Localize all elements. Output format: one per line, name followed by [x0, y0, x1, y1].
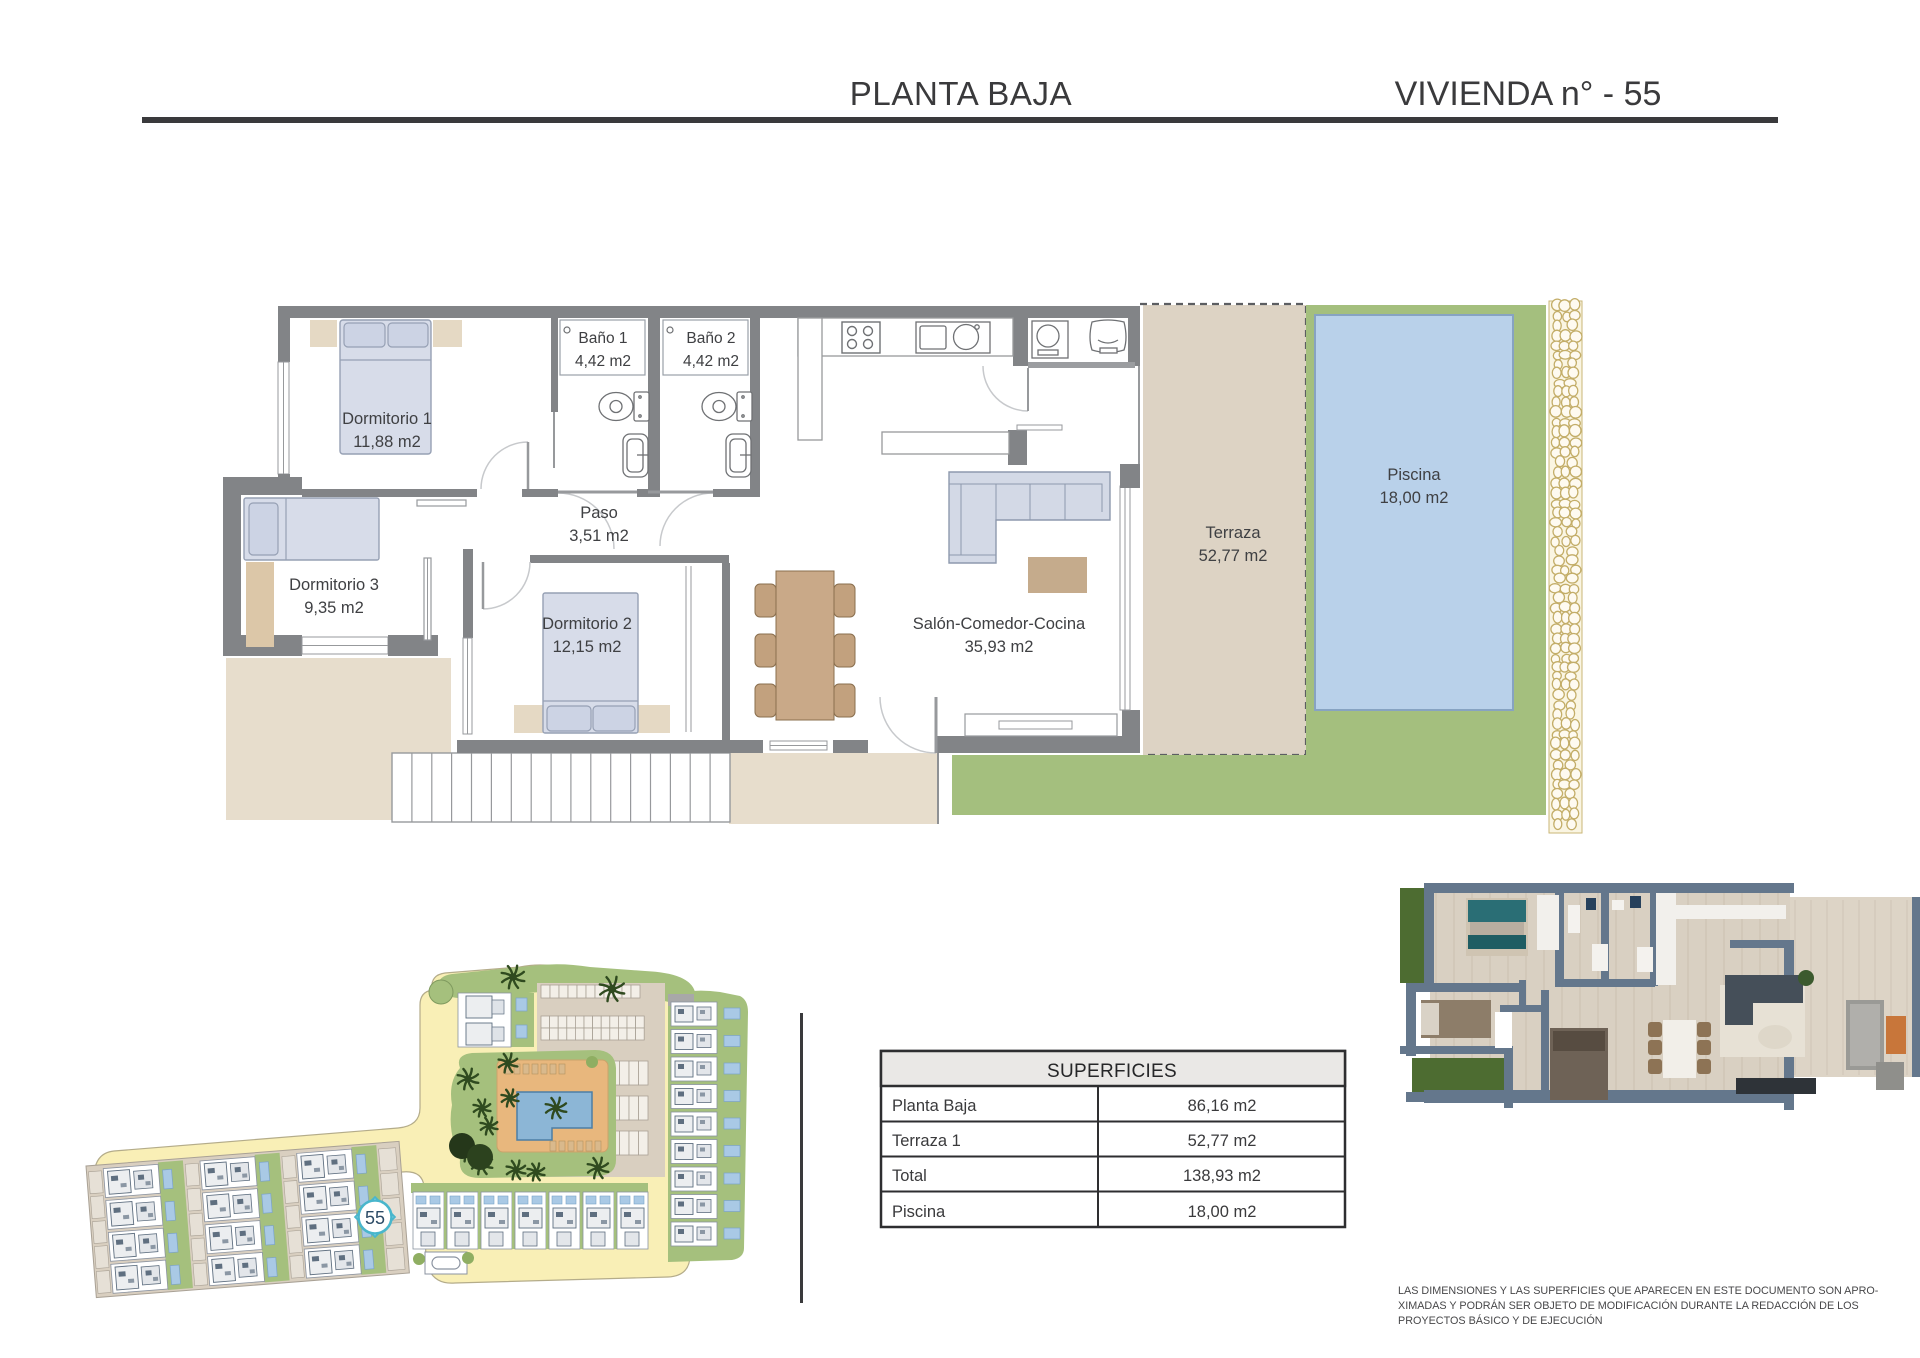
svg-text:Planta Baja: Planta Baja [892, 1097, 977, 1115]
svg-text:Paso: Paso [580, 504, 618, 522]
svg-text:Terraza 1: Terraza 1 [892, 1132, 961, 1150]
svg-text:138,93 m2: 138,93 m2 [1183, 1167, 1261, 1185]
svg-text:18,00 m2: 18,00 m2 [1188, 1203, 1257, 1221]
svg-text:Dormitorio 2: Dormitorio 2 [542, 615, 632, 633]
svg-text:4,42 m2: 4,42 m2 [683, 353, 739, 370]
svg-text:11,88 m2: 11,88 m2 [353, 433, 421, 451]
svg-text:9,35 m2: 9,35 m2 [304, 599, 364, 617]
svg-text:Terraza: Terraza [1205, 524, 1261, 542]
svg-text:18,00 m2: 18,00 m2 [1380, 489, 1449, 507]
svg-text:3,51 m2: 3,51 m2 [569, 527, 629, 545]
svg-text:Total: Total [892, 1167, 927, 1185]
svg-text:35,93 m2: 35,93 m2 [965, 638, 1034, 656]
svg-text:55: 55 [365, 1208, 385, 1228]
svg-text:Dormitorio 1: Dormitorio 1 [342, 410, 432, 428]
svg-text:12,15 m2: 12,15 m2 [553, 638, 622, 656]
svg-text:4,42 m2: 4,42 m2 [575, 353, 631, 370]
svg-text:86,16 m2: 86,16 m2 [1188, 1097, 1257, 1115]
svg-text:PLANTA BAJA: PLANTA BAJA [850, 75, 1072, 112]
svg-text:Piscina: Piscina [892, 1203, 946, 1221]
svg-text:PROYECTOS BÁSICO Y DE EJECUCIÓ: PROYECTOS BÁSICO Y DE EJECUCIÓN [1398, 1314, 1603, 1327]
svg-text:XIMADAS Y PODRÁN SER OBJETO DE: XIMADAS Y PODRÁN SER OBJETO DE MODIFICAC… [1398, 1299, 1859, 1312]
svg-text:Dormitorio 3: Dormitorio 3 [289, 576, 379, 594]
svg-text:Salón-Comedor-Cocina: Salón-Comedor-Cocina [913, 615, 1086, 633]
svg-text:LAS DIMENSIONES Y LAS SUPERFIC: LAS DIMENSIONES Y LAS SUPERFICIES QUE AP… [1398, 1285, 1879, 1297]
svg-text:Baño 1: Baño 1 [578, 330, 627, 347]
svg-text:Piscina: Piscina [1387, 466, 1441, 484]
svg-text:52,77 m2: 52,77 m2 [1188, 1132, 1257, 1150]
svg-text:SUPERFICIES: SUPERFICIES [1047, 1061, 1177, 1082]
svg-text:Baño 2: Baño 2 [686, 330, 735, 347]
svg-text:VIVIENDA n° - 55: VIVIENDA n° - 55 [1395, 75, 1662, 113]
svg-text:52,77 m2: 52,77 m2 [1199, 547, 1268, 565]
